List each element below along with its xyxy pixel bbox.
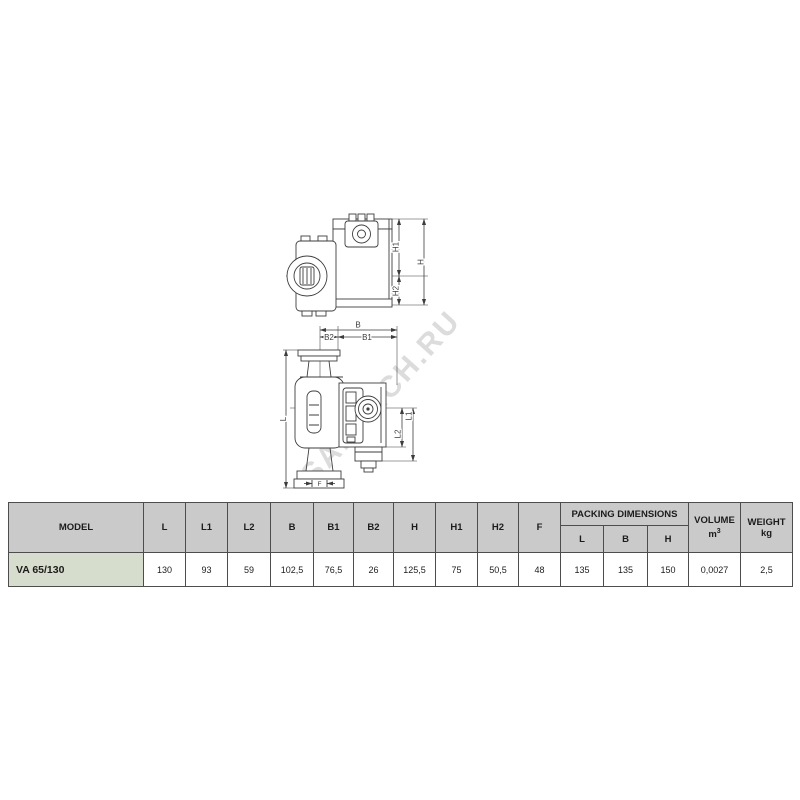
col-header-packing-b: B [604, 526, 648, 553]
col-header-b: B [271, 503, 314, 553]
value-packing-b: 135 [604, 553, 648, 587]
value-l2: 59 [228, 553, 271, 587]
value-packing-h: 150 [648, 553, 689, 587]
volume-unit: m3 [708, 529, 720, 540]
dim-label-h2: H2 [392, 285, 401, 296]
pump-technical-drawing: SANTECH.RU [0, 0, 800, 800]
col-header-h1: H1 [436, 503, 478, 553]
value-b2: 26 [354, 553, 394, 587]
value-volume: 0,0027 [689, 553, 741, 587]
dim-label-h1: H1 [392, 241, 401, 252]
dim-label-b2: B2 [324, 333, 334, 342]
dim-label-l2: L2 [394, 429, 403, 438]
value-h1: 75 [436, 553, 478, 587]
dim-label-h: H [417, 259, 426, 265]
dim-label-b1: B1 [362, 333, 372, 342]
dim-label-l1: L1 [405, 411, 414, 420]
dimension-table: MODEL L L1 L2 B B1 B2 H H1 H2 F PACKING … [8, 502, 792, 587]
table-row-va-65-130: VA 65/130 130 93 59 102,5 76,5 26 125,5 … [9, 553, 793, 587]
col-header-packing-l: L [561, 526, 604, 553]
col-header-b2: B2 [354, 503, 394, 553]
value-l1: 93 [186, 553, 228, 587]
col-header-weight: WEIGHT kg [741, 503, 793, 553]
col-header-packing-h: H [648, 526, 689, 553]
dim-label-l: L [279, 416, 288, 421]
model-name-cell: VA 65/130 [9, 553, 144, 587]
col-header-b1: B1 [314, 503, 354, 553]
page: SANTECH.RU [0, 0, 800, 800]
value-f: 48 [519, 553, 561, 587]
volume-title: VOLUME [694, 515, 735, 526]
dim-label-b: B [355, 321, 360, 330]
col-header-h: H [394, 503, 436, 553]
value-l: 130 [144, 553, 186, 587]
col-header-packing-dimensions: PACKING DIMENSIONS [561, 503, 689, 526]
col-header-h2: H2 [478, 503, 519, 553]
value-weight: 2,5 [741, 553, 793, 587]
weight-title: WEIGHT [748, 517, 786, 528]
weight-unit: kg [761, 528, 772, 539]
value-b: 102,5 [271, 553, 314, 587]
dim-label-f: F [318, 481, 322, 488]
value-h2: 50,5 [478, 553, 519, 587]
col-header-l2: L2 [228, 503, 271, 553]
value-b1: 76,5 [314, 553, 354, 587]
pump-side-view: H1 H2 H [286, 214, 428, 316]
value-h: 125,5 [394, 553, 436, 587]
col-header-model: MODEL [9, 503, 144, 553]
col-header-l1: L1 [186, 503, 228, 553]
value-packing-l: 135 [561, 553, 604, 587]
col-header-volume: VOLUME m3 [689, 503, 741, 553]
col-header-f: F [519, 503, 561, 553]
col-header-l: L [144, 503, 186, 553]
